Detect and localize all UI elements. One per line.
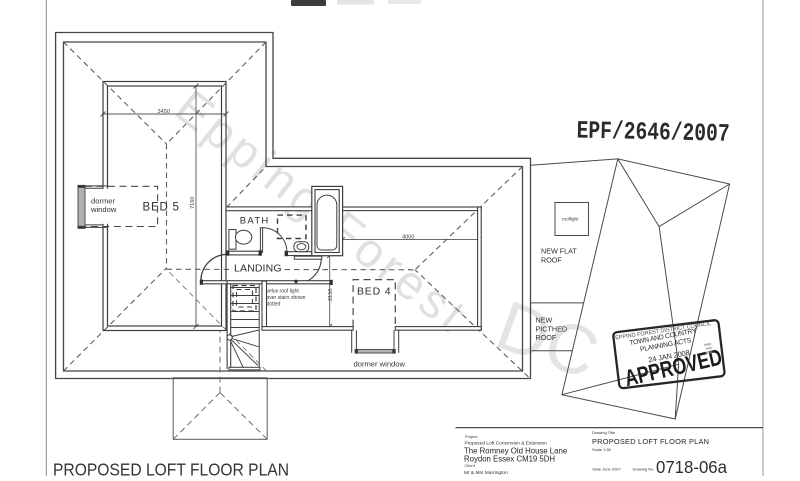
- svg-text:PROPOSED LOFT FLOOR PLAN: PROPOSED LOFT FLOOR PLAN: [592, 437, 709, 446]
- svg-text:2150: 2150: [328, 289, 334, 301]
- svg-text:Client: Client: [465, 463, 476, 468]
- svg-text:dotted: dotted: [267, 302, 281, 308]
- svg-text:Mr & Mrs Marrington: Mr & Mrs Marrington: [464, 470, 508, 476]
- svg-text:Drawing No: Drawing No: [633, 467, 655, 472]
- svg-text:LANDING: LANDING: [234, 262, 282, 274]
- svg-text:over stairs shown: over stairs shown: [267, 295, 306, 301]
- svg-text:velux roof light: velux roof light: [267, 289, 300, 295]
- svg-text:7160: 7160: [190, 197, 196, 209]
- svg-text:Project: Project: [465, 434, 478, 439]
- svg-text:dormer window: dormer window: [354, 360, 406, 369]
- svg-text:BED 5: BED 5: [143, 202, 180, 214]
- svg-text:rooflight: rooflight: [562, 217, 579, 222]
- svg-text:EPF/2646/2007: EPF/2646/2007: [576, 117, 730, 149]
- svg-text:Drawing Title: Drawing Title: [592, 430, 616, 435]
- svg-text:PICTHED: PICTHED: [536, 324, 568, 333]
- svg-text:Scale 1:50: Scale 1:50: [592, 447, 612, 452]
- svg-text:0718-06a: 0718-06a: [656, 457, 727, 476]
- svg-text:Date June 2007: Date June 2007: [593, 467, 622, 472]
- svg-text:NEW FLAT: NEW FLAT: [541, 247, 577, 256]
- svg-text:NEW: NEW: [536, 316, 553, 325]
- svg-text:Roydon Essex CM19 5DH: Roydon Essex CM19 5DH: [464, 454, 555, 463]
- svg-text:BATH: BATH: [240, 215, 269, 226]
- svg-text:4000: 4000: [402, 235, 414, 241]
- svg-text:PROPOSED LOFT FLOOR PLAN: PROPOSED LOFT FLOOR PLAN: [53, 460, 289, 477]
- svg-text:ROOF: ROOF: [536, 333, 557, 342]
- svg-text:ROOF: ROOF: [541, 255, 562, 264]
- svg-text:3450: 3450: [158, 109, 170, 115]
- svg-text:window: window: [90, 205, 117, 214]
- svg-text:BED 4: BED 4: [357, 286, 391, 298]
